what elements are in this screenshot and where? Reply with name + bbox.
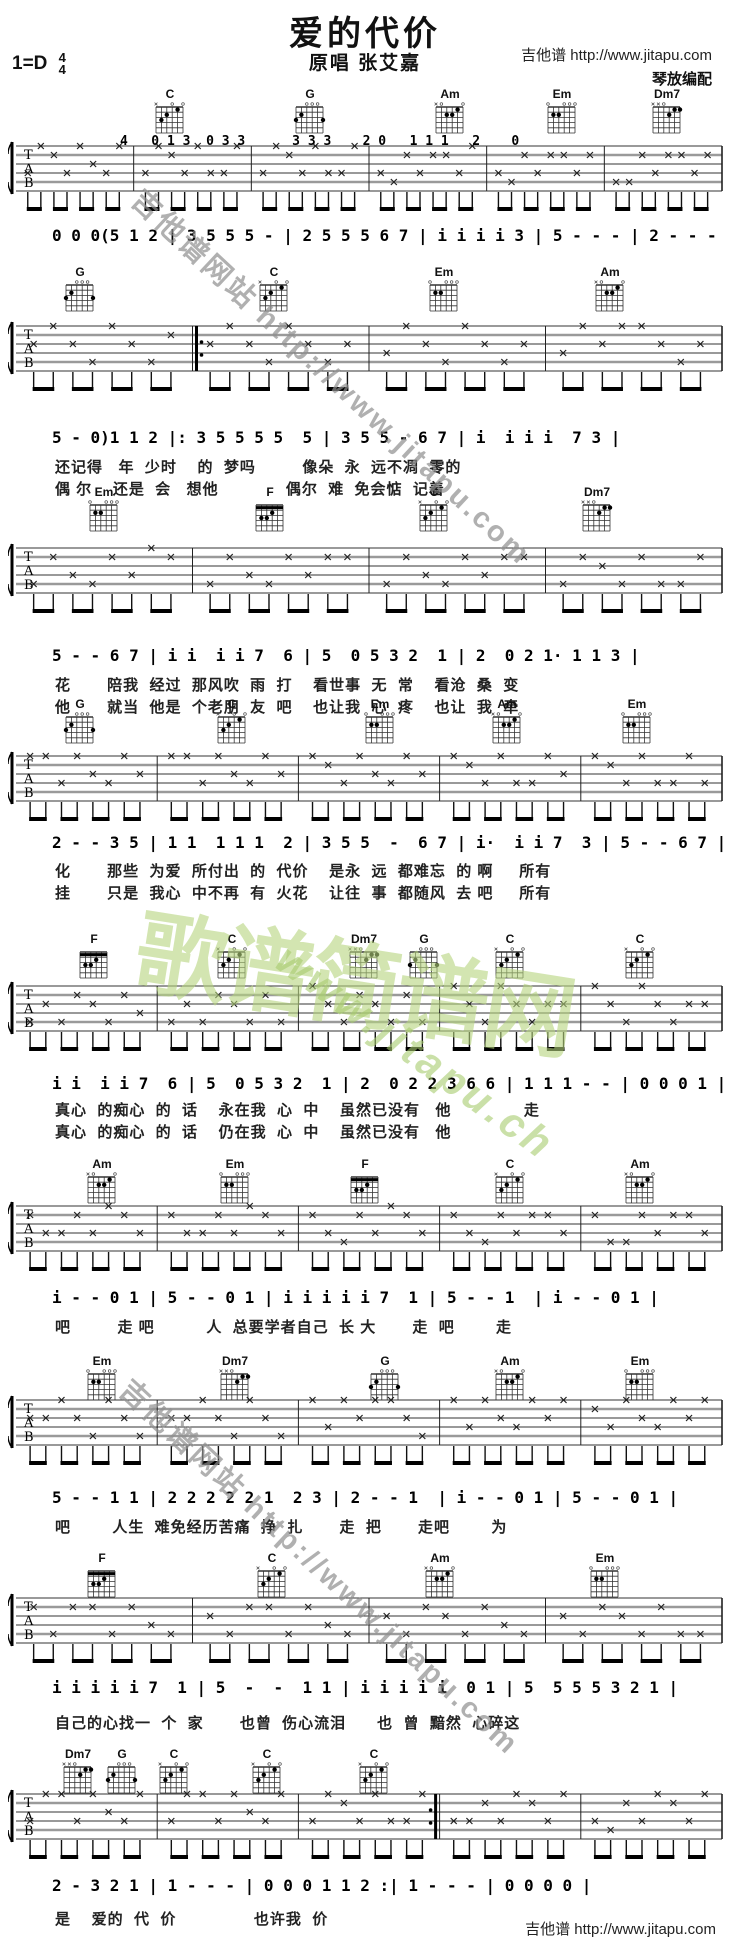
tab-staff: TAB bbox=[8, 140, 724, 220]
chord-diagram-em bbox=[427, 279, 461, 315]
chord-label: Am bbox=[80, 1158, 124, 1171]
svg-text:T: T bbox=[24, 758, 33, 773]
chord-c: C bbox=[412, 486, 456, 535]
chord-diagram-f bbox=[253, 499, 287, 535]
chord-label: C bbox=[152, 1748, 196, 1761]
chord-diagram-g bbox=[63, 279, 97, 315]
chord-diagram-g bbox=[407, 946, 441, 982]
chord-label: C bbox=[488, 933, 532, 946]
svg-text:A: A bbox=[23, 1614, 34, 1629]
chord-label: Em bbox=[82, 486, 126, 499]
chord-label: Dm7 bbox=[575, 486, 619, 499]
chord-diagram-dm7 bbox=[650, 101, 684, 137]
chord-label: C bbox=[148, 88, 192, 101]
melody-line: 5 - 0)1 1 2 |: 3 5 5 5 5 5 | 3 5 5 - 6 7… bbox=[52, 428, 620, 447]
chord-g: G bbox=[288, 88, 332, 137]
key-value: 1=D bbox=[12, 53, 47, 74]
chord-diagram-c bbox=[257, 279, 291, 315]
svg-text:B: B bbox=[24, 356, 34, 371]
tab-staff: TAB bbox=[8, 1394, 724, 1474]
chord-diagram-c bbox=[623, 946, 657, 982]
chord-label: Em bbox=[80, 1355, 124, 1368]
chord-label: Am bbox=[488, 1355, 532, 1368]
chord-f: F bbox=[72, 933, 116, 982]
chord-em: Em bbox=[82, 486, 126, 535]
chord-diagram-am bbox=[593, 279, 627, 315]
chord-diagram-g bbox=[63, 711, 97, 747]
chord-diagram-c bbox=[215, 946, 249, 982]
lyrics-line: 挂 只是 我心 中不再 有 火花 让往 事 都随风 去 吧 所有 bbox=[55, 882, 551, 903]
tab-staff: TAB bbox=[8, 1788, 724, 1868]
chord-g: G bbox=[402, 933, 446, 982]
chord-c: C bbox=[618, 933, 662, 982]
chord-label: C bbox=[618, 933, 662, 946]
melody-line: 0 0 0(5 1 2 | 3 5 5 5 - | 2 5 5 5 6 7 | … bbox=[52, 226, 730, 245]
lyrics-line: 化 那些 为爱 所付出 的 代价 是永 远 都难忘 的 啊 所有 bbox=[55, 860, 551, 881]
chord-label: G bbox=[402, 933, 446, 946]
chord-label: C bbox=[210, 698, 254, 711]
tab-staff: TAB bbox=[8, 320, 724, 400]
chord-label: Dm7 bbox=[56, 1748, 100, 1761]
svg-text:T: T bbox=[24, 1600, 33, 1615]
lyrics-line: 真心 的痴心 的 话 仍在我 心 中 虽然已没有 他 bbox=[55, 1121, 452, 1142]
guitar-tab-sheet: 爱的代价 原唱 张艾嘉 吉他谱 http://www.jitapu.com 琴放… bbox=[0, 0, 730, 1953]
svg-text:B: B bbox=[24, 1236, 34, 1251]
svg-text:B: B bbox=[24, 1430, 34, 1445]
svg-text:T: T bbox=[24, 1402, 33, 1417]
chord-diagram-g bbox=[293, 101, 327, 137]
chord-label: Em bbox=[583, 1552, 627, 1565]
lyrics-line: 真心 的痴心 的 话 永在我 心 中 虽然已没有 他 走 bbox=[55, 1099, 540, 1120]
chord-f: F bbox=[248, 486, 292, 535]
lyrics-line: 吧 人生 难免经历苦痛 挣 扎 走 把 走吧 为 bbox=[55, 1516, 507, 1537]
chord-label: C bbox=[252, 266, 296, 279]
svg-text:T: T bbox=[24, 1208, 33, 1223]
chord-label: Am bbox=[618, 1158, 662, 1171]
chord-diagram-dm7 bbox=[580, 499, 614, 535]
chord-diagram-em bbox=[545, 101, 579, 137]
intro-tab-digits: 4 0 1 3 0 3 3 3 3 3 2 0 1 1 1 2 0 bbox=[120, 134, 519, 149]
tab-staff: TAB bbox=[8, 542, 724, 622]
chord-label: C bbox=[250, 1552, 294, 1565]
chord-label: Am bbox=[428, 88, 472, 101]
svg-text:A: A bbox=[23, 1416, 34, 1431]
chord-label: F bbox=[343, 1158, 387, 1171]
svg-text:B: B bbox=[24, 786, 34, 801]
chord-diagram-c bbox=[215, 711, 249, 747]
chord-label: Am bbox=[418, 1552, 462, 1565]
melody-line: i i i i i 7 1 | 5 - - 1 1 | i i i i i 0 … bbox=[52, 1678, 678, 1697]
time-signature: 4 4 bbox=[59, 52, 66, 76]
chord-label: Em bbox=[422, 266, 466, 279]
chord-label: G bbox=[58, 698, 102, 711]
site-link-top[interactable]: 吉他谱 http://www.jitapu.com bbox=[521, 44, 712, 65]
chord-g: G bbox=[58, 698, 102, 747]
chord-c: C bbox=[210, 933, 254, 982]
chord-c: C bbox=[252, 266, 296, 315]
svg-text:B: B bbox=[24, 176, 34, 191]
svg-text:T: T bbox=[24, 1796, 33, 1811]
svg-text:B: B bbox=[24, 1628, 34, 1643]
chord-c: C bbox=[210, 698, 254, 747]
melody-line: i - - 0 1 | 5 - - 0 1 | i i i i i 7 1 | … bbox=[52, 1288, 659, 1307]
key-signature: 1=D 4 4 bbox=[12, 52, 66, 76]
chord-label: Dm7 bbox=[213, 1355, 257, 1368]
svg-text:A: A bbox=[23, 1222, 34, 1237]
chord-label: Em bbox=[358, 698, 402, 711]
svg-text:B: B bbox=[24, 1824, 34, 1839]
chord-label: Am bbox=[485, 698, 529, 711]
chord-label: F bbox=[72, 933, 116, 946]
melody-line: 5 - - 6 7 | i i i i 7 6 | 5 0 5 3 2 1 | … bbox=[52, 646, 640, 665]
svg-text:A: A bbox=[23, 1002, 34, 1017]
lyrics-line: 他 就当 他是 个老朋 友 吧 也让我 心 疼 也让 我 牵 bbox=[55, 696, 519, 717]
chord-label: C bbox=[245, 1748, 289, 1761]
chord-diagram-c bbox=[417, 499, 451, 535]
chord-dm7: Dm7 bbox=[645, 88, 689, 137]
chord-label: Dm7 bbox=[645, 88, 689, 101]
chord-dm7: Dm7 bbox=[342, 933, 386, 982]
chord-diagram-am bbox=[433, 101, 467, 137]
chord-label: Dm7 bbox=[342, 933, 386, 946]
melody-line: 2 - - 3 5 | 1 1 1 1 1 2 | 3 5 5 - 6 7 | … bbox=[52, 833, 726, 852]
chord-em: Em bbox=[615, 698, 659, 747]
chord-diagram-c bbox=[153, 101, 187, 137]
tab-staff: TAB bbox=[8, 980, 724, 1060]
chord-c: C bbox=[148, 88, 192, 137]
chord-label: G bbox=[58, 266, 102, 279]
chord-g: G bbox=[58, 266, 102, 315]
arranger-credit: 琴放编配 bbox=[652, 68, 712, 89]
chord-label: Am bbox=[588, 266, 632, 279]
chord-diagram-f bbox=[77, 946, 111, 982]
chord-am: Am bbox=[588, 266, 632, 315]
chord-diagram-dm7 bbox=[347, 946, 381, 982]
chord-diagram-am bbox=[490, 711, 524, 747]
svg-text:T: T bbox=[24, 550, 33, 565]
svg-text:A: A bbox=[23, 162, 34, 177]
svg-text:A: A bbox=[23, 564, 34, 579]
lyrics-line: 还记得 年 少时 的 梦吗 像朵 永 远不凋 零的 bbox=[55, 456, 461, 477]
chord-label: C bbox=[352, 1748, 396, 1761]
melody-line: 5 - - 1 1 | 2 2 2 2 2 1 2 3 | 2 - - 1 | … bbox=[52, 1488, 678, 1507]
chord-am: Am bbox=[428, 88, 472, 137]
svg-text:T: T bbox=[24, 328, 33, 343]
svg-text:T: T bbox=[24, 148, 33, 163]
tab-staff: TAB bbox=[8, 1200, 724, 1280]
chord-diagram-em bbox=[87, 499, 121, 535]
tab-staff: TAB bbox=[8, 1592, 724, 1672]
chord-am: Am bbox=[485, 698, 529, 747]
melody-line: i i i i 7 6 | 5 0 5 3 2 1 | 2 0 2 2 3 6 … bbox=[52, 1074, 726, 1093]
chord-label: Em bbox=[540, 88, 584, 101]
chord-label: C bbox=[488, 1158, 532, 1171]
chord-diagram-em bbox=[620, 711, 654, 747]
melody-line: 2 - 3 2 1 | 1 - - - | 0 0 0 1 1 2 :| 1 -… bbox=[52, 1876, 591, 1895]
svg-text:T: T bbox=[24, 988, 33, 1003]
chord-label: G bbox=[363, 1355, 407, 1368]
lyrics-line: 自己的心找一 个 家 也曾 伤心流泪 也 曾 黯然 心碎这 bbox=[55, 1712, 520, 1733]
chord-c: C bbox=[488, 933, 532, 982]
chord-em: Em bbox=[358, 698, 402, 747]
chord-em: Em bbox=[540, 88, 584, 137]
site-link-bottom[interactable]: 吉他谱 http://www.jitapu.com bbox=[525, 1918, 716, 1939]
chord-label: Em bbox=[213, 1158, 257, 1171]
chord-label: G bbox=[288, 88, 332, 101]
chord-diagram-em bbox=[363, 711, 397, 747]
chord-label: G bbox=[100, 1748, 144, 1761]
chord-label: C bbox=[210, 933, 254, 946]
lyrics-line: 是 爱的 代 价 也许我 价 bbox=[55, 1908, 328, 1929]
chord-label: C bbox=[412, 486, 456, 499]
lyrics-line: 吧 走 吧 人 总要学者自己 长 大 走 吧 走 bbox=[55, 1316, 512, 1337]
chord-label: F bbox=[80, 1552, 124, 1565]
chord-dm7: Dm7 bbox=[575, 486, 619, 535]
tab-staff: TAB bbox=[8, 750, 724, 830]
lyrics-line: 花 陪我 经过 那风吹 雨 打 看世事 无 常 看沧 桑 变 bbox=[55, 674, 519, 695]
chord-label: Em bbox=[618, 1355, 662, 1368]
chord-label: Em bbox=[615, 698, 659, 711]
chord-label: F bbox=[248, 486, 292, 499]
chord-diagram-c bbox=[493, 946, 527, 982]
svg-text:A: A bbox=[23, 342, 34, 357]
svg-text:A: A bbox=[23, 772, 34, 787]
chord-em: Em bbox=[422, 266, 466, 315]
